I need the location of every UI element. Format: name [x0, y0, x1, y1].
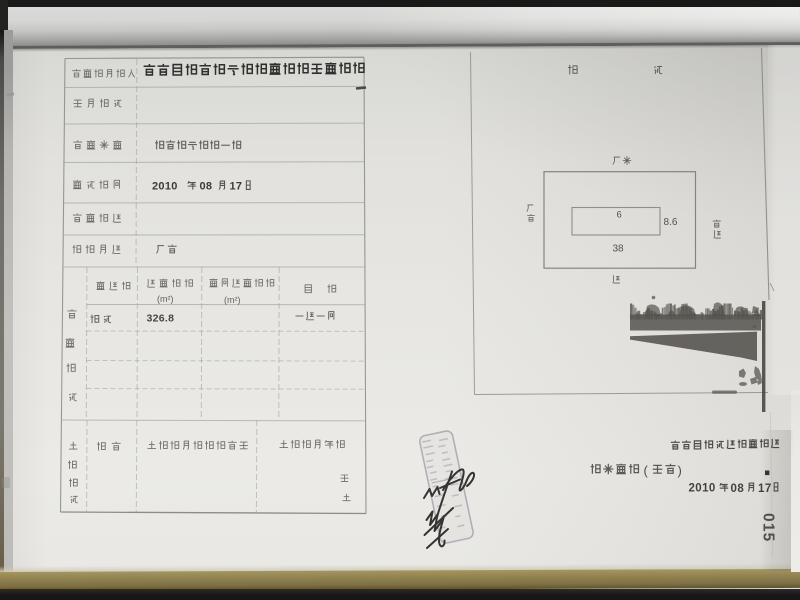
- svg-text:): ): [678, 463, 682, 478]
- svg-text:17: 17: [758, 483, 772, 495]
- svg-text:2010: 2010: [152, 181, 178, 193]
- svg-text:17: 17: [230, 181, 243, 193]
- svg-text:(m²): (m²): [224, 295, 241, 305]
- svg-text:8.6: 8.6: [664, 217, 678, 228]
- svg-text:38: 38: [613, 244, 625, 255]
- svg-text:326.8: 326.8: [147, 313, 175, 325]
- svg-text:(m²): (m²): [157, 294, 174, 304]
- svg-text:6: 6: [617, 210, 622, 221]
- svg-text:(: (: [644, 463, 649, 478]
- svg-text:08: 08: [200, 181, 213, 193]
- svg-text:08: 08: [731, 483, 745, 495]
- svg-text:015: 015: [760, 513, 777, 542]
- svg-text:2010: 2010: [689, 483, 716, 495]
